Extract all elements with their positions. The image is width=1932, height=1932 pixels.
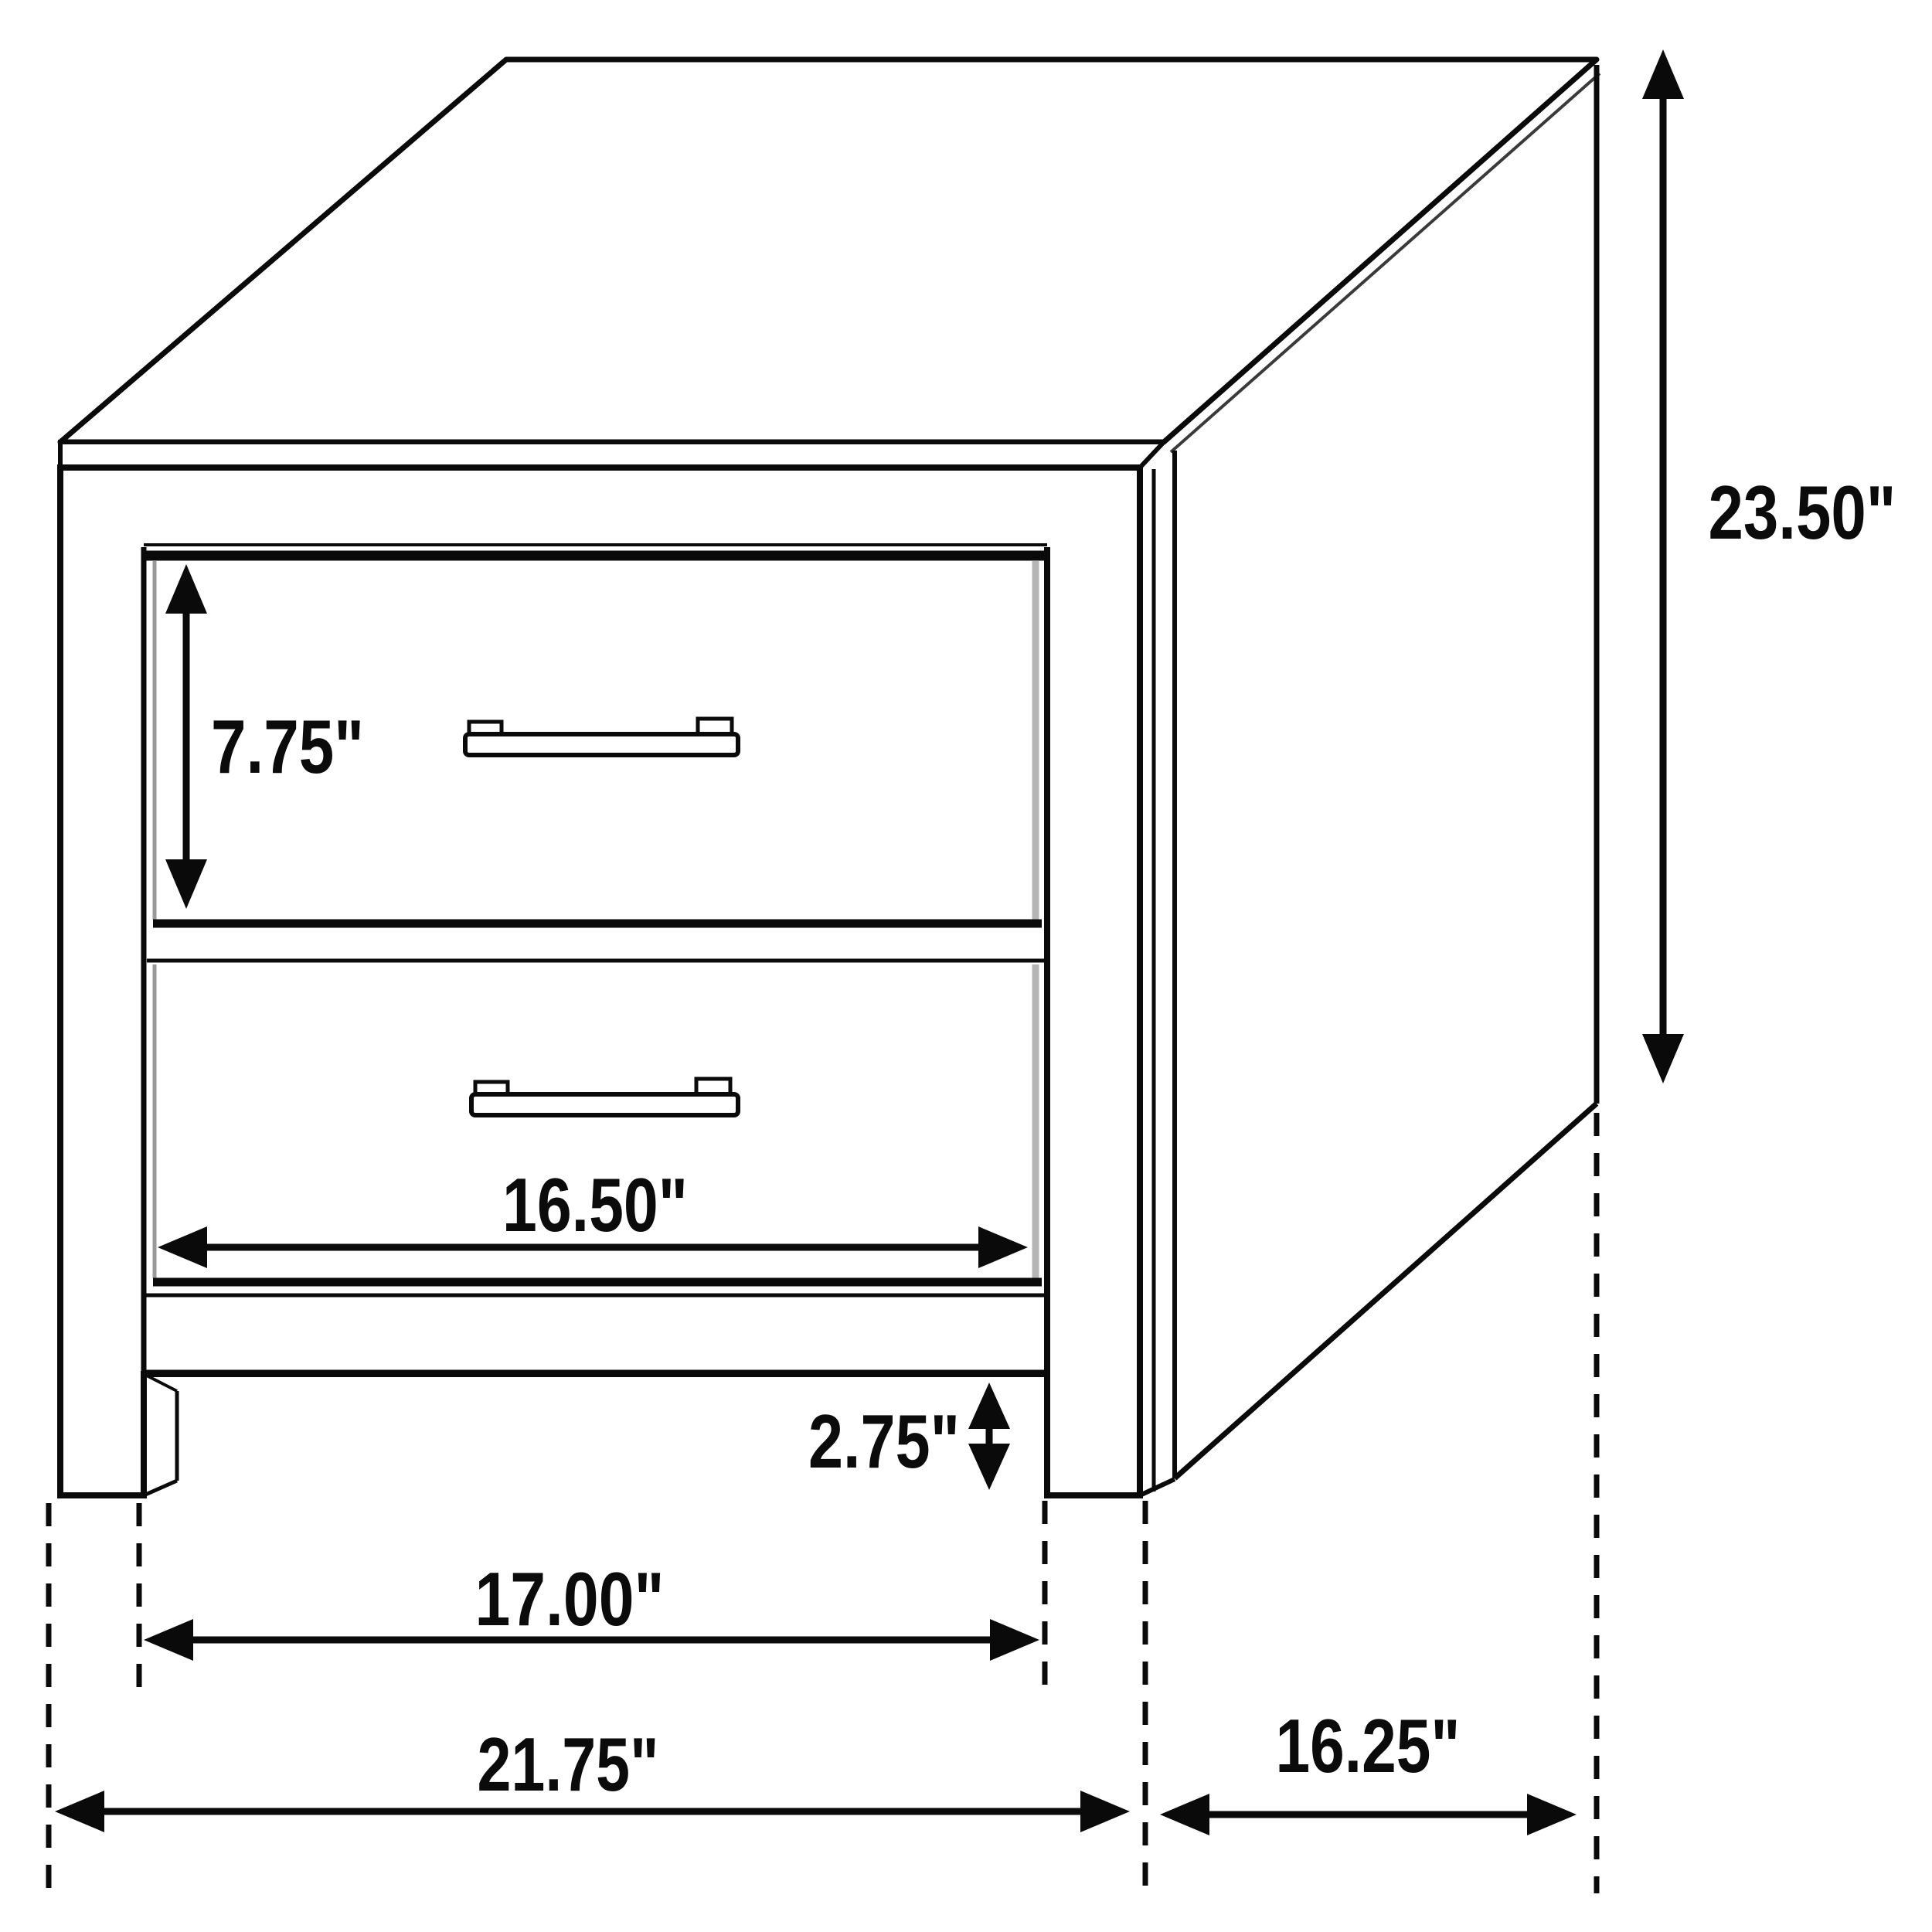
arrowhead-left <box>1160 1794 1209 1835</box>
nightstand-dimension-diagram: 7.75" 23.50" 16.50" 2.75" 17 <box>0 0 1932 1932</box>
arrowhead-up <box>968 1383 1010 1429</box>
dim-label-drawer-width: 16.50" <box>502 1162 688 1247</box>
drawer-1-handle-bar <box>465 734 738 755</box>
dim-label-depth: 16.25" <box>1276 1703 1461 1788</box>
dim-overall-width: 21.75" <box>55 1722 1130 1832</box>
top-surface <box>60 60 1597 442</box>
front-frame-outline <box>60 468 1140 1495</box>
arrowhead-right <box>1527 1794 1577 1835</box>
dim-leg-height: 2.75" <box>808 1383 1010 1490</box>
arrowhead-down <box>968 1444 1010 1490</box>
dim-label-overall-width: 21.75" <box>478 1722 659 1807</box>
arrowhead-left <box>144 1619 193 1661</box>
legs <box>144 1374 177 1495</box>
front-frame <box>60 468 1140 1495</box>
left-leg-inner-bottom-slant <box>144 1481 177 1495</box>
dim-label-drawer-height: 7.75" <box>211 704 364 789</box>
arrowhead-up <box>1642 49 1684 99</box>
dim-label-overall-height: 23.50" <box>1709 470 1896 555</box>
arrowhead-right <box>990 1619 1039 1661</box>
top-panel <box>60 60 1600 468</box>
dim-depth: 16.25" <box>1160 1703 1577 1835</box>
dim-label-leg-height: 2.75" <box>808 1399 960 1484</box>
arrowhead-down <box>1642 1034 1684 1083</box>
dim-label-inner-width: 17.00" <box>475 1556 665 1641</box>
right-leg-bottom-slant <box>1140 1479 1175 1495</box>
arrowhead-right <box>1080 1791 1130 1832</box>
dim-inner-width: 17.00" <box>144 1556 1039 1661</box>
side-bottom-edge <box>1175 1104 1597 1478</box>
drawer-2-handle-bar <box>471 1094 738 1115</box>
diagram-canvas: 7.75" 23.50" 16.50" 2.75" 17 <box>0 0 1932 1932</box>
dim-overall-height: 23.50" <box>1642 49 1896 1083</box>
top-front-edge <box>60 442 1164 468</box>
arrowhead-left <box>55 1791 104 1832</box>
